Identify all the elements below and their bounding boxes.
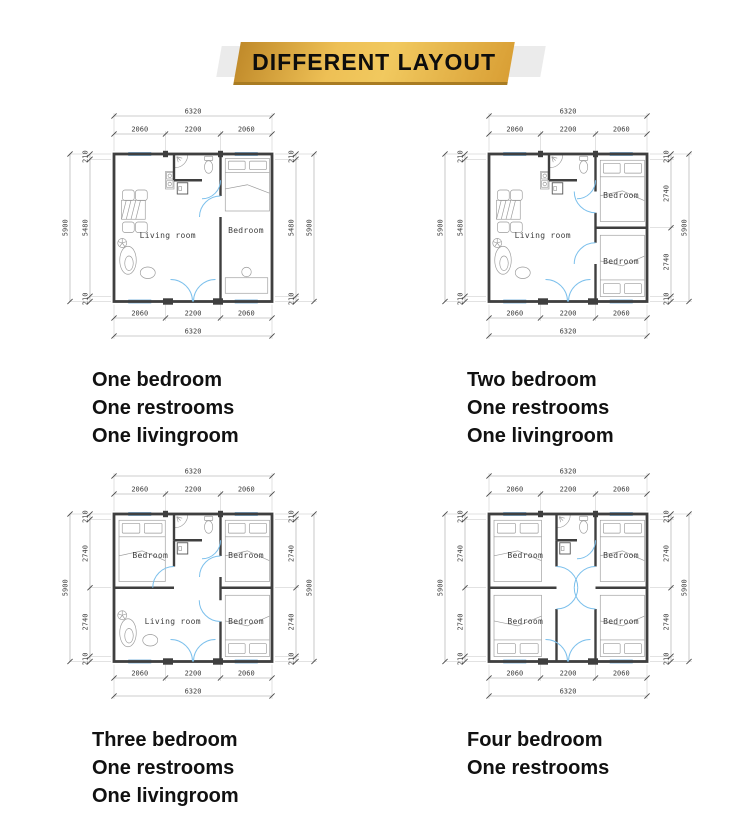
svg-text:210: 210 [456,293,464,306]
plan-caption: One bedroomOne restroomsOne livingroom [92,366,375,456]
svg-text:6320: 6320 [559,688,576,696]
svg-text:5480: 5480 [81,219,89,236]
svg-text:2060: 2060 [131,126,148,134]
plan-caption-line: One livingroom [467,422,750,450]
plan-caption-line: One livingroom [92,422,375,450]
svg-text:2200: 2200 [184,310,201,318]
room-label: Bedroom [603,191,639,200]
svg-text:2200: 2200 [184,126,201,134]
svg-text:2740: 2740 [287,545,295,562]
floor-plan-drawing-two-bedroom: 6320206022002060206022002060632059002105… [393,96,733,364]
room-label: Bedroom [603,257,639,266]
room-label: Bedroom [603,551,639,560]
room-label: Bedroom [228,617,264,626]
room-label: Bedroom [603,617,639,626]
page: DIFFERENT LAYOUT 63202060220020602060220… [0,0,750,831]
svg-text:6320: 6320 [184,328,201,336]
room-label: Living room [144,617,200,626]
svg-text:2060: 2060 [506,126,523,134]
svg-text:5900: 5900 [436,219,444,236]
svg-text:2740: 2740 [81,614,89,631]
svg-text:210: 210 [456,510,464,523]
svg-text:210: 210 [662,293,670,306]
svg-text:2060: 2060 [612,310,629,318]
svg-text:2060: 2060 [237,670,254,678]
svg-text:2060: 2060 [612,126,629,134]
svg-text:2060: 2060 [506,310,523,318]
plan-caption-line: One restrooms [467,394,750,422]
svg-text:6320: 6320 [184,468,201,476]
svg-text:2740: 2740 [456,545,464,562]
plan-caption-line: Three bedroom [92,726,375,754]
svg-text:2740: 2740 [662,614,670,631]
svg-text:210: 210 [662,653,670,666]
svg-text:5900: 5900 [436,579,444,596]
svg-text:210: 210 [662,510,670,523]
room-label: Bedroom [132,551,168,560]
svg-text:6320: 6320 [559,468,576,476]
svg-text:210: 210 [81,653,89,666]
banner: DIFFERENT LAYOUT [233,42,515,85]
svg-text:5480: 5480 [456,219,464,236]
svg-text:5900: 5900 [680,579,688,596]
banner-title: DIFFERENT LAYOUT [252,49,496,76]
svg-text:2200: 2200 [559,486,576,494]
svg-text:2200: 2200 [184,486,201,494]
plan-caption-line: Four bedroom [467,726,750,754]
svg-text:2060: 2060 [237,486,254,494]
room-label: Bedroom [228,551,264,560]
svg-text:2200: 2200 [184,670,201,678]
svg-text:5900: 5900 [305,579,313,596]
plan-caption-line: Two bedroom [467,366,750,394]
svg-text:210: 210 [81,510,89,523]
svg-text:2200: 2200 [559,670,576,678]
floor-plan-one-bedroom: 6320206022002060206022002060632059002105… [0,96,375,456]
svg-text:6320: 6320 [184,108,201,116]
plan-caption-line: One restrooms [92,394,375,422]
svg-text:5480: 5480 [287,219,295,236]
room-label: Bedroom [228,226,264,235]
svg-text:2060: 2060 [506,670,523,678]
svg-text:2060: 2060 [506,486,523,494]
svg-text:2740: 2740 [662,545,670,562]
svg-text:2740: 2740 [81,545,89,562]
svg-text:2740: 2740 [287,614,295,631]
svg-text:5900: 5900 [680,219,688,236]
room-label: Living room [139,231,195,240]
svg-text:2200: 2200 [559,310,576,318]
svg-text:2200: 2200 [559,126,576,134]
floor-plan-drawing-three-bedroom: 6320206022002060206022002060632059002102… [18,456,358,724]
svg-text:210: 210 [287,150,295,163]
svg-text:210: 210 [287,510,295,523]
svg-text:2060: 2060 [612,486,629,494]
svg-text:210: 210 [287,293,295,306]
floor-plan-drawing-one-bedroom: 6320206022002060206022002060632059002105… [18,96,358,364]
floor-plan-three-bedroom: 6320206022002060206022002060632059002102… [0,456,375,816]
room-label: Bedroom [507,551,543,560]
svg-text:2740: 2740 [456,614,464,631]
room-label: Bedroom [507,617,543,626]
svg-text:210: 210 [287,653,295,666]
svg-text:2060: 2060 [237,126,254,134]
svg-text:2060: 2060 [131,310,148,318]
svg-text:210: 210 [456,653,464,666]
svg-text:6320: 6320 [559,328,576,336]
floor-plan-four-bedroom: 6320206022002060206022002060632059002102… [375,456,750,816]
plan-caption: Two bedroomOne restroomsOne livingroom [467,366,750,456]
plan-caption-line: One restrooms [467,754,750,782]
plan-caption-line: One restrooms [92,754,375,782]
svg-text:2740: 2740 [662,254,670,271]
svg-text:5900: 5900 [61,579,69,596]
floor-plan-grid: 6320206022002060206022002060632059002105… [0,96,750,816]
floor-plan-drawing-four-bedroom: 6320206022002060206022002060632059002102… [393,456,733,724]
plan-caption: Four bedroomOne restrooms [467,726,750,816]
svg-text:6320: 6320 [184,688,201,696]
svg-text:210: 210 [662,150,670,163]
plan-caption: Three bedroomOne restroomsOne livingroom [92,726,375,816]
room-label: Living room [514,231,570,240]
svg-text:2060: 2060 [612,670,629,678]
svg-text:2740: 2740 [662,185,670,202]
svg-text:5900: 5900 [61,219,69,236]
svg-text:210: 210 [81,150,89,163]
floor-plan-two-bedroom: 6320206022002060206022002060632059002105… [375,96,750,456]
plan-caption-line: One livingroom [92,782,375,810]
svg-text:6320: 6320 [559,108,576,116]
svg-text:5900: 5900 [305,219,313,236]
svg-text:210: 210 [456,150,464,163]
svg-text:2060: 2060 [131,670,148,678]
svg-text:2060: 2060 [131,486,148,494]
svg-text:2060: 2060 [237,310,254,318]
plan-caption-line: One bedroom [92,366,375,394]
svg-text:210: 210 [81,293,89,306]
